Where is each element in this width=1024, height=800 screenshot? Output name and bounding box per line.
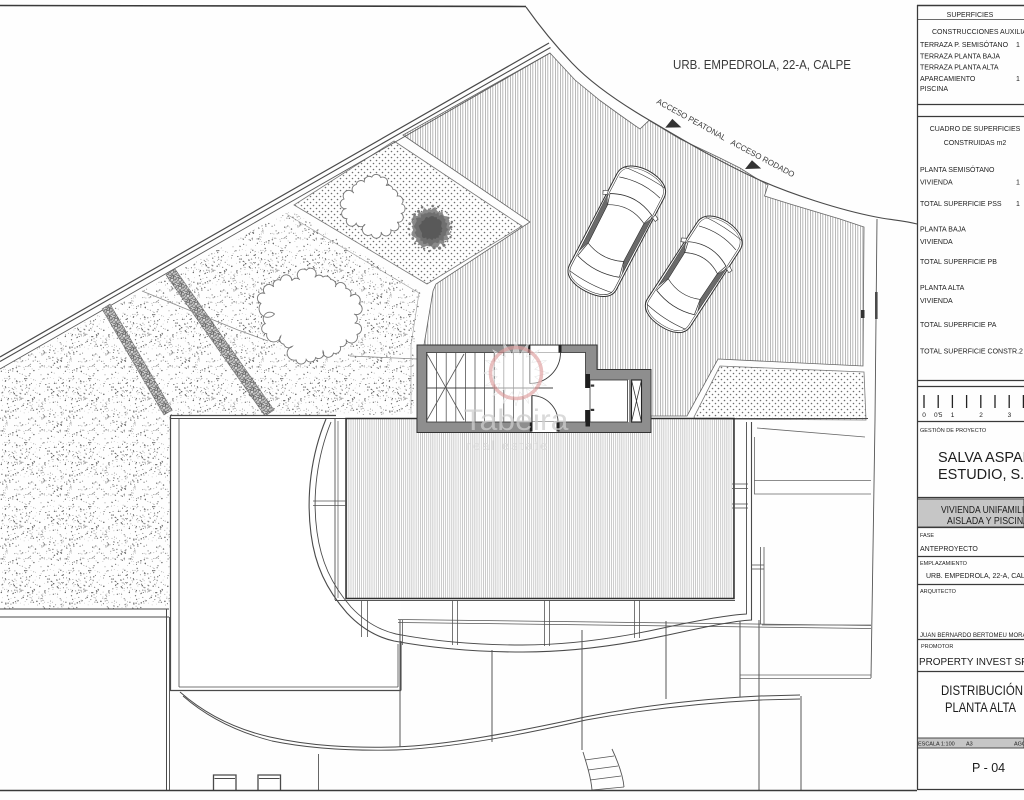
svg-text:1: 1 (1016, 201, 1020, 208)
svg-text:ARQUITECTO: ARQUITECTO (920, 589, 957, 595)
svg-text:TOTAL SUPERFICIE PSS: TOTAL SUPERFICIE PSS (920, 201, 1002, 208)
svg-text:CONSTRUCCIONES AUXILIARES: CONSTRUCCIONES AUXILIARES (932, 29, 1024, 36)
svg-text:URB. EMPEDROLA, 22-A, CALPE: URB. EMPEDROLA, 22-A, CALPE (673, 57, 851, 72)
svg-text:VIVIENDA: VIVIENDA (920, 239, 953, 246)
svg-text:EMPLAZAMIENTO: EMPLAZAMIENTO (920, 561, 968, 567)
svg-text:ESCALA 1:100: ESCALA 1:100 (918, 742, 955, 748)
svg-text:1: 1 (1016, 76, 1020, 83)
svg-text:PLANTA BAJA: PLANTA BAJA (920, 227, 966, 234)
svg-text:A3: A3 (966, 742, 973, 748)
svg-text:ANTEPROYECTO: ANTEPROYECTO (920, 546, 978, 553)
svg-text:real estate: real estate (467, 438, 550, 453)
svg-text:PROPERTY INVEST SPAIN S.L.: PROPERTY INVEST SPAIN S.L. (919, 656, 1024, 668)
svg-text:VIVIENDA: VIVIENDA (920, 298, 953, 305)
svg-text:0'5: 0'5 (934, 412, 943, 419)
svg-text:FASE: FASE (920, 533, 934, 539)
svg-text:CUADRO DE SUPERFICIES: CUADRO DE SUPERFICIES (930, 126, 1021, 133)
svg-text:CONSTRUIDAS m2: CONSTRUIDAS m2 (944, 140, 1007, 147)
svg-text:URB. EMPEDROLA, 22-A, CALPE (A: URB. EMPEDROLA, 22-A, CALPE (ALICANTE) (926, 573, 1024, 580)
svg-text:P - 04: P - 04 (972, 761, 1005, 775)
svg-text:PLANTA ALTA: PLANTA ALTA (945, 699, 1017, 715)
svg-text:ESTUDIO, S.L.: ESTUDIO, S.L. (938, 467, 1024, 483)
svg-text:TERRAZA PLANTA ALTA: TERRAZA PLANTA ALTA (920, 65, 999, 72)
svg-text:VIVIENDA: VIVIENDA (920, 180, 953, 187)
svg-text:3: 3 (1008, 412, 1012, 419)
svg-text:SUPERFICIES: SUPERFICIES (947, 12, 994, 19)
svg-text:1: 1 (1016, 180, 1020, 187)
svg-text:DISTRIBUCIÓN: DISTRIBUCIÓN (941, 682, 1023, 698)
svg-text:TOTAL SUPERFICIE CONSTR.: TOTAL SUPERFICIE CONSTR. (920, 349, 1019, 356)
svg-text:TOTAL SUPERFICIE PB: TOTAL SUPERFICIE PB (920, 259, 997, 266)
svg-text:TERRAZA P. SEMISÓTANO: TERRAZA P. SEMISÓTANO (920, 40, 1009, 49)
svg-text:2: 2 (1019, 349, 1023, 356)
svg-text:PLANTA ALTA: PLANTA ALTA (920, 285, 965, 292)
svg-text:SALVA ASPAR: SALVA ASPAR (938, 450, 1024, 466)
svg-text:GESTIÓN DE PROYECTO: GESTIÓN DE PROYECTO (920, 427, 987, 434)
svg-text:TOTAL SUPERFICIE PA: TOTAL SUPERFICIE PA (920, 322, 997, 329)
svg-text:AISLADA Y PISCINA: AISLADA Y PISCINA (947, 515, 1024, 527)
svg-text:JUAN BERNARDO BERTOMEU MORAGUE: JUAN BERNARDO BERTOMEU MORAGUES (920, 633, 1024, 639)
svg-text:APARCAMIENTO: APARCAMIENTO (920, 76, 976, 83)
svg-text:2: 2 (979, 412, 983, 419)
svg-text:PROMOTOR: PROMOTOR (921, 644, 953, 650)
svg-text:PLANTA SEMISÓTANO: PLANTA SEMISÓTANO (920, 165, 995, 174)
svg-text:PISCINA: PISCINA (920, 86, 948, 93)
svg-text:Tabeira: Tabeira (464, 404, 569, 437)
svg-text:TERRAZA PLANTA BAJA: TERRAZA PLANTA BAJA (920, 54, 1000, 61)
svg-text:1: 1 (1016, 42, 1020, 49)
svg-text:AGO: AGO (1014, 742, 1024, 748)
svg-text:0: 0 (922, 412, 926, 419)
svg-text:1: 1 (951, 412, 955, 419)
